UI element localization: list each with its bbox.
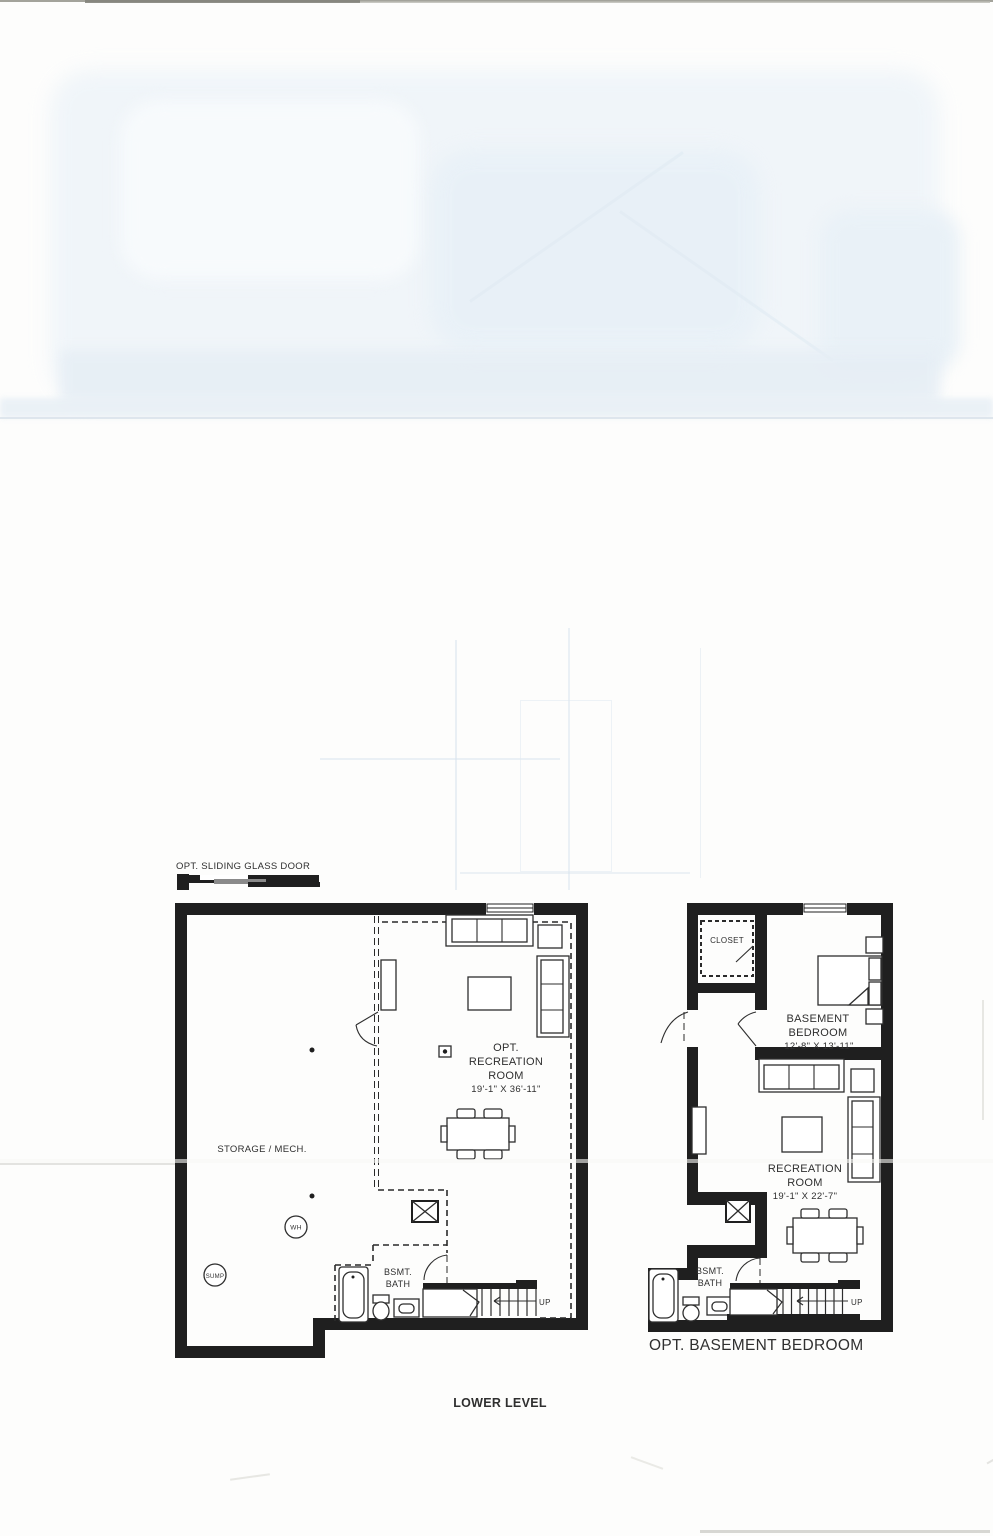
dining-table bbox=[787, 1209, 863, 1262]
water-heater: WH bbox=[285, 1216, 307, 1238]
dining-table bbox=[441, 1109, 515, 1159]
svg-text:ROOM: ROOM bbox=[488, 1070, 523, 1082]
entry-door bbox=[661, 1012, 688, 1045]
right-plan-caption: OPT. BASEMENT BEDROOM bbox=[649, 1337, 863, 1354]
svg-text:BEDROOM: BEDROOM bbox=[789, 1027, 848, 1039]
bath-door bbox=[424, 1255, 447, 1283]
svg-text:19'-1" X 22'-7": 19'-1" X 22'-7" bbox=[773, 1191, 838, 1202]
bathtub bbox=[339, 1267, 368, 1322]
coffee-table bbox=[468, 977, 511, 1010]
svg-text:WH: WH bbox=[290, 1225, 301, 1232]
sectional-sofa bbox=[848, 1097, 880, 1182]
svg-text:BATH: BATH bbox=[386, 1279, 411, 1289]
right-plan: CLOSET BA bbox=[648, 901, 893, 1354]
sump-pump: SUMP bbox=[204, 1264, 226, 1286]
floor-outlet bbox=[439, 1046, 451, 1057]
svg-text:RECREATION: RECREATION bbox=[768, 1163, 842, 1175]
bath-label: BSMT. BATH bbox=[696, 1266, 724, 1288]
sliding-door-label: OPT. SLIDING GLASS DOOR bbox=[176, 861, 310, 872]
entry-opening bbox=[684, 1010, 701, 1047]
svg-text:SUMP: SUMP bbox=[206, 1274, 225, 1280]
nightstand bbox=[866, 937, 883, 953]
svg-text:12'-8" X 13'-11": 12'-8" X 13'-11" bbox=[784, 1041, 853, 1052]
scan-crease bbox=[0, 1159, 993, 1163]
stairs: UP bbox=[423, 1280, 551, 1317]
scanned-floorplan-sheet: OPT. SLIDING GLASS DOOR bbox=[0, 0, 993, 1536]
left-wall-gap bbox=[684, 1205, 701, 1245]
svg-text:BASEMENT: BASEMENT bbox=[787, 1013, 850, 1025]
bedroom-wall-left bbox=[755, 913, 767, 1010]
up-label: UP bbox=[539, 1298, 551, 1307]
bath-door bbox=[736, 1258, 760, 1283]
svg-text:BSMT.: BSMT. bbox=[696, 1266, 724, 1276]
tv-console bbox=[381, 960, 396, 1010]
tv-console bbox=[692, 1107, 706, 1154]
nightstand bbox=[866, 1009, 883, 1024]
chase-box bbox=[726, 1200, 750, 1222]
bathtub bbox=[649, 1269, 678, 1322]
chase-box bbox=[412, 1201, 438, 1222]
toilet bbox=[373, 1295, 389, 1320]
toilet bbox=[683, 1297, 699, 1321]
storage-label: STORAGE / MECH. bbox=[217, 1144, 306, 1155]
left-plan: OPT. SLIDING GLASS DOOR bbox=[175, 861, 588, 1358]
sectional-sofa bbox=[537, 956, 569, 1037]
stair-treads bbox=[482, 1289, 536, 1316]
sliding-door-symbol bbox=[177, 874, 320, 890]
closet: CLOSET bbox=[701, 921, 753, 976]
closet-label: CLOSET bbox=[710, 936, 744, 945]
bedroom-door bbox=[738, 1012, 756, 1046]
side-table bbox=[851, 1069, 874, 1092]
sink bbox=[394, 1299, 419, 1317]
coffee-table bbox=[782, 1117, 822, 1152]
svg-text:ROOM: ROOM bbox=[787, 1177, 822, 1189]
svg-text:OPT.: OPT. bbox=[493, 1042, 519, 1054]
sofa bbox=[759, 1059, 844, 1092]
rec-room-label: OPT. RECREATION ROOM 19'-1" X 36'-11" bbox=[469, 1042, 543, 1095]
svg-text:BATH: BATH bbox=[698, 1278, 723, 1288]
support-post bbox=[310, 1194, 315, 1199]
side-table bbox=[538, 925, 562, 948]
rec-room-label: RECREATION ROOM 19'-1" X 22'-7" bbox=[768, 1163, 842, 1202]
level-caption: LOWER LEVEL bbox=[453, 1396, 547, 1410]
bath-wall-top bbox=[687, 1245, 767, 1258]
bed bbox=[818, 956, 882, 1005]
closet-wall-bottom bbox=[687, 983, 757, 993]
stairs: UP bbox=[727, 1280, 863, 1322]
up-label: UP bbox=[851, 1298, 863, 1307]
sofa bbox=[446, 915, 533, 946]
bath-label: BSMT. BATH bbox=[384, 1267, 412, 1289]
svg-text:BSMT.: BSMT. bbox=[384, 1267, 412, 1277]
support-post bbox=[310, 1048, 315, 1053]
svg-text:19'-1" X 36'-11": 19'-1" X 36'-11" bbox=[471, 1084, 540, 1095]
sink bbox=[707, 1297, 732, 1315]
lower-level-plan-drawing: OPT. SLIDING GLASS DOOR bbox=[0, 0, 993, 1536]
bedroom-label: BASEMENT BEDROOM 12'-8" X 13'-11" bbox=[784, 1013, 853, 1052]
right-plan-window bbox=[803, 901, 847, 917]
partition-dashed-line bbox=[375, 916, 379, 1190]
svg-text:RECREATION: RECREATION bbox=[469, 1056, 543, 1068]
